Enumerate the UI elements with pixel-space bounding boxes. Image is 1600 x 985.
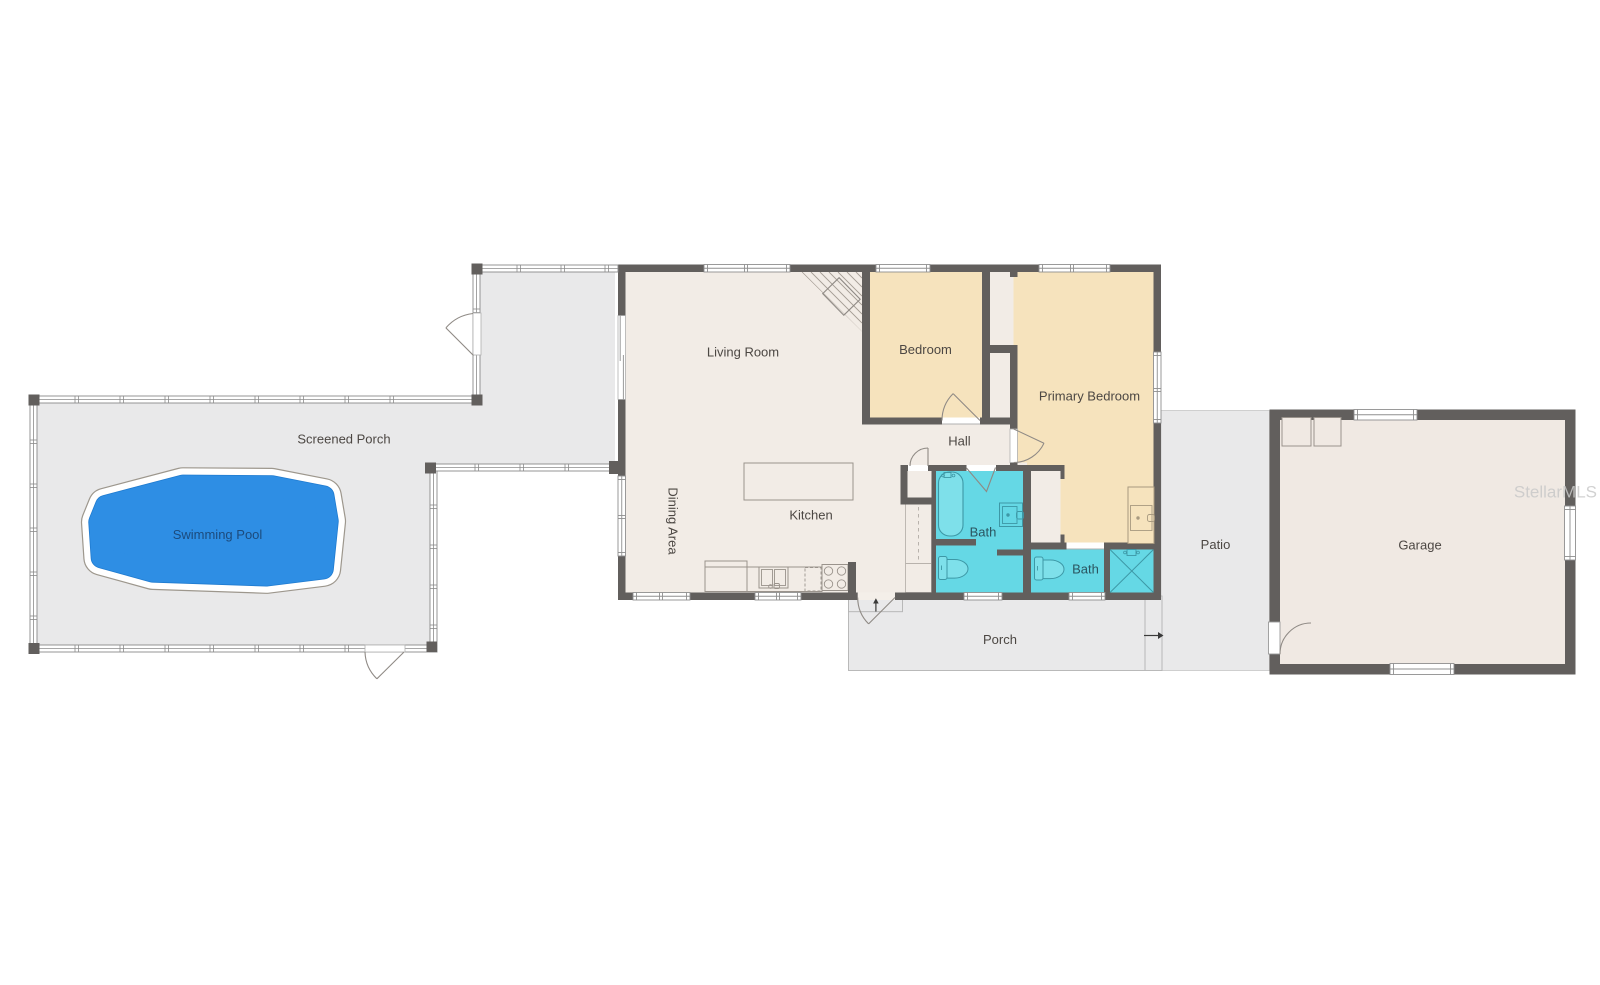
svg-text:Swimming Pool: Swimming Pool <box>173 527 263 542</box>
svg-text:Living Room: Living Room <box>707 345 779 360</box>
svg-text:StellarMLS: StellarMLS <box>1514 483 1597 502</box>
svg-text:Kitchen: Kitchen <box>789 508 832 523</box>
svg-text:Screened Porch: Screened Porch <box>297 432 390 447</box>
svg-text:Bath: Bath <box>970 525 997 540</box>
svg-text:Dining Area: Dining Area <box>666 487 681 555</box>
svg-text:Porch: Porch <box>983 632 1017 647</box>
svg-text:Primary Bedroom: Primary Bedroom <box>1039 389 1140 404</box>
svg-text:Hall: Hall <box>948 434 971 449</box>
svg-text:Garage: Garage <box>1398 538 1441 553</box>
svg-text:Bath: Bath <box>1072 562 1099 577</box>
svg-text:Bedroom: Bedroom <box>899 342 952 357</box>
svg-text:Patio: Patio <box>1201 537 1231 552</box>
